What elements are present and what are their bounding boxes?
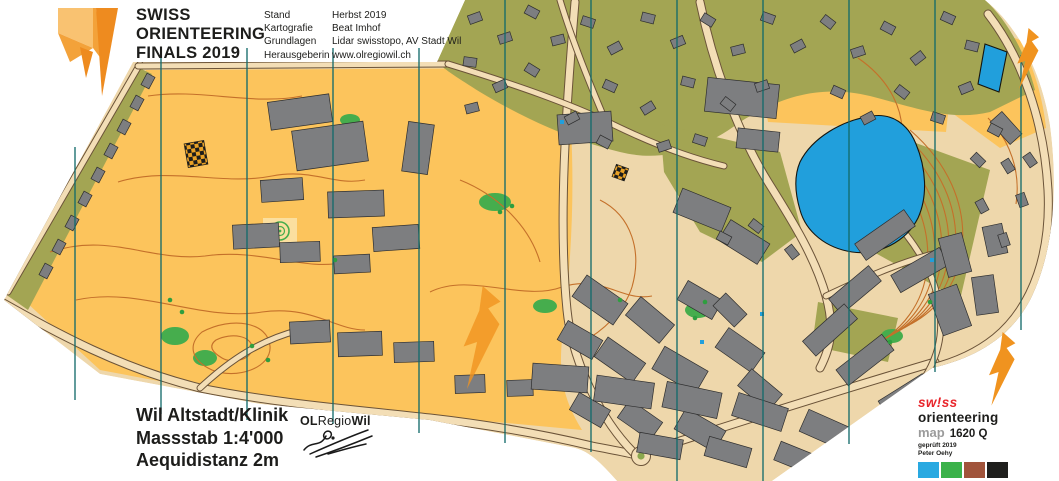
credit-label: Grundlagen: [264, 35, 332, 48]
checked-line: geprüft 2019: [918, 443, 1028, 450]
club-name-last: Wil: [351, 414, 370, 428]
swiss-orienteering-wordmark-top: sw!ss: [918, 396, 1028, 410]
credit-label: Stand: [264, 9, 332, 22]
map-equidistance: Aequidistanz 2m: [136, 449, 288, 472]
swatch-black: [987, 462, 1008, 478]
event-title-line1: SWISS: [136, 6, 265, 25]
credit-row-kartografie: Kartografie Beat Imhof: [264, 22, 461, 35]
map-sheet: SWISS ORIENTEERING FINALS 2019 Stand Her…: [0, 0, 1059, 481]
swatch-brown: [964, 462, 985, 478]
print-color-swatches: [918, 462, 1028, 478]
event-title: SWISS ORIENTEERING FINALS 2019: [136, 6, 265, 63]
certification-block: sw!ss orienteering map1620 Q geprüft 201…: [918, 396, 1028, 478]
map-name: Wil Altstadt/Klinik: [136, 404, 288, 427]
credit-value: Lidar swisstopo, AV Stadt Wil: [332, 35, 461, 48]
credit-label: Herausgeberin: [264, 49, 332, 62]
finals-logo: [58, 8, 118, 96]
event-title-line3: FINALS 2019: [136, 44, 265, 63]
event-title-line2: ORIENTEERING: [136, 25, 265, 44]
credit-row-grundlagen: Grundlagen Lidar swisstopo, AV Stadt Wil: [264, 35, 461, 48]
credit-value: www.olregiowil.ch: [332, 49, 411, 62]
credit-value: Herbst 2019: [332, 9, 386, 22]
credit-row-stand: Stand Herbst 2019: [264, 9, 461, 22]
map-word: map: [918, 425, 945, 440]
map-number-line: map1620 Q: [918, 426, 1028, 441]
club-logo-sketch: [304, 430, 372, 457]
credit-value: Beat Imhof: [332, 22, 380, 35]
club-name-first: OL: [300, 414, 318, 428]
map-scale: Massstab 1:4'000: [136, 427, 288, 450]
credit-label: Kartografie: [264, 22, 332, 35]
map-info: Wil Altstadt/Klinik Massstab 1:4'000 Aeq…: [136, 404, 288, 472]
checker-name: Peter Oehy: [918, 451, 1028, 458]
swatch-green: [941, 462, 962, 478]
credit-row-herausgeberin: Herausgeberin www.olregiowil.ch: [264, 49, 461, 62]
map-credits: Stand Herbst 2019 Kartografie Beat Imhof…: [264, 9, 461, 62]
club-name-middle: Regio: [318, 414, 352, 428]
swiss-orienteering-wordmark-bottom: orienteering: [918, 411, 1028, 425]
club-logo: OLRegioWil: [296, 418, 382, 428]
map-number: 1620 Q: [950, 428, 988, 440]
club-name: OLRegioWil: [300, 414, 382, 428]
swatch-blue: [918, 462, 939, 478]
